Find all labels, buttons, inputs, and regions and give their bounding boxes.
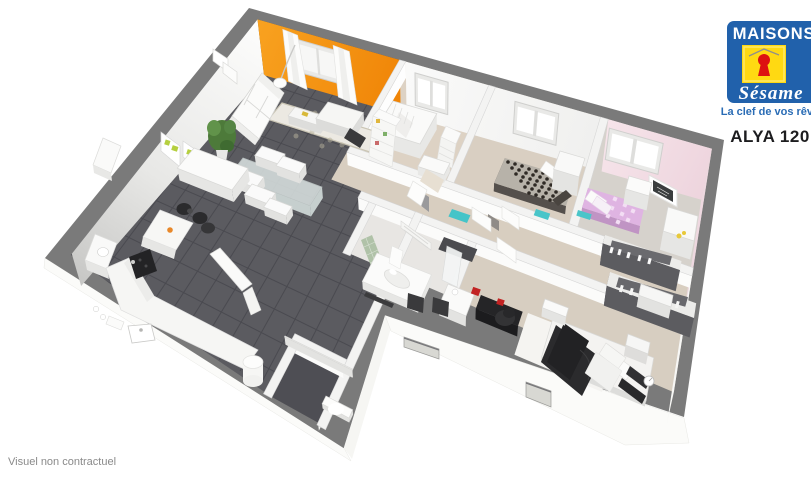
svg-text:MAISONS: MAISONS: [733, 25, 811, 43]
svg-text:ALYA 120: ALYA 120: [730, 127, 810, 146]
svg-text:La clef de vos rêves: La clef de vos rêves: [721, 106, 811, 118]
svg-text:Visuel non contractuel: Visuel non contractuel: [8, 456, 116, 468]
svg-text:Sésame: Sésame: [738, 83, 803, 104]
